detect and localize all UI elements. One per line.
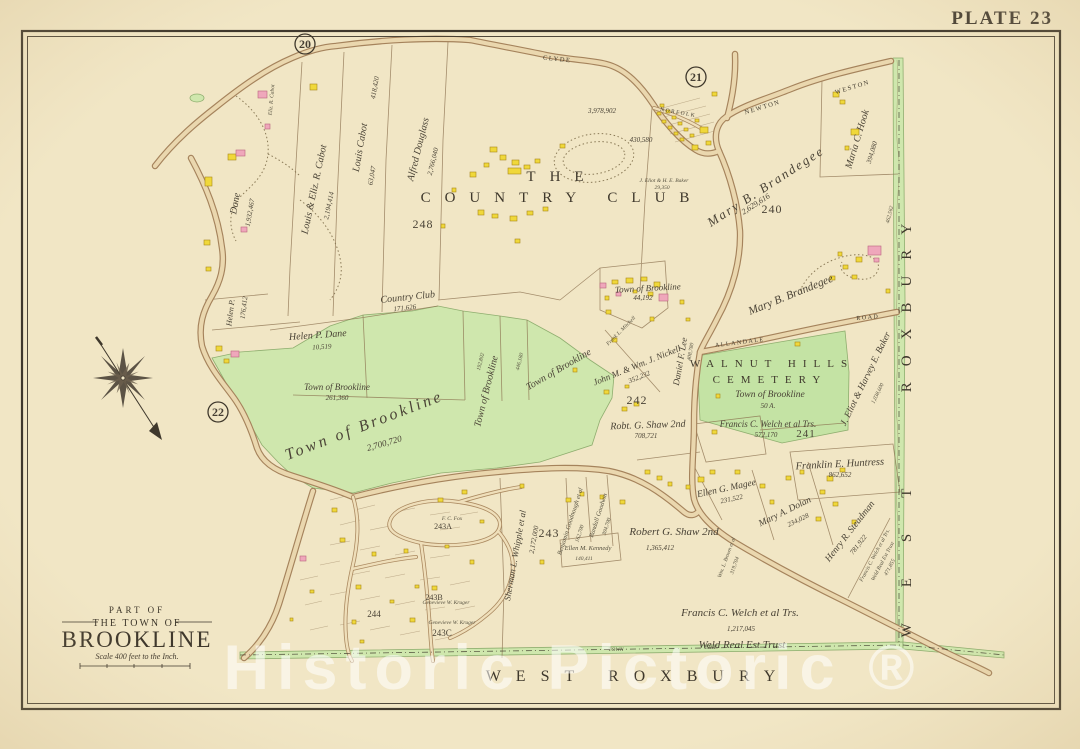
atlas-plate-scan: THE COUNTRY CLUB WALNUT HILLS CEMETERY T… bbox=[0, 0, 1080, 749]
watermark-text: Historic Pictoric ® bbox=[223, 633, 922, 703]
map-svg: THE COUNTRY CLUB WALNUT HILLS CEMETERY T… bbox=[0, 0, 1080, 749]
